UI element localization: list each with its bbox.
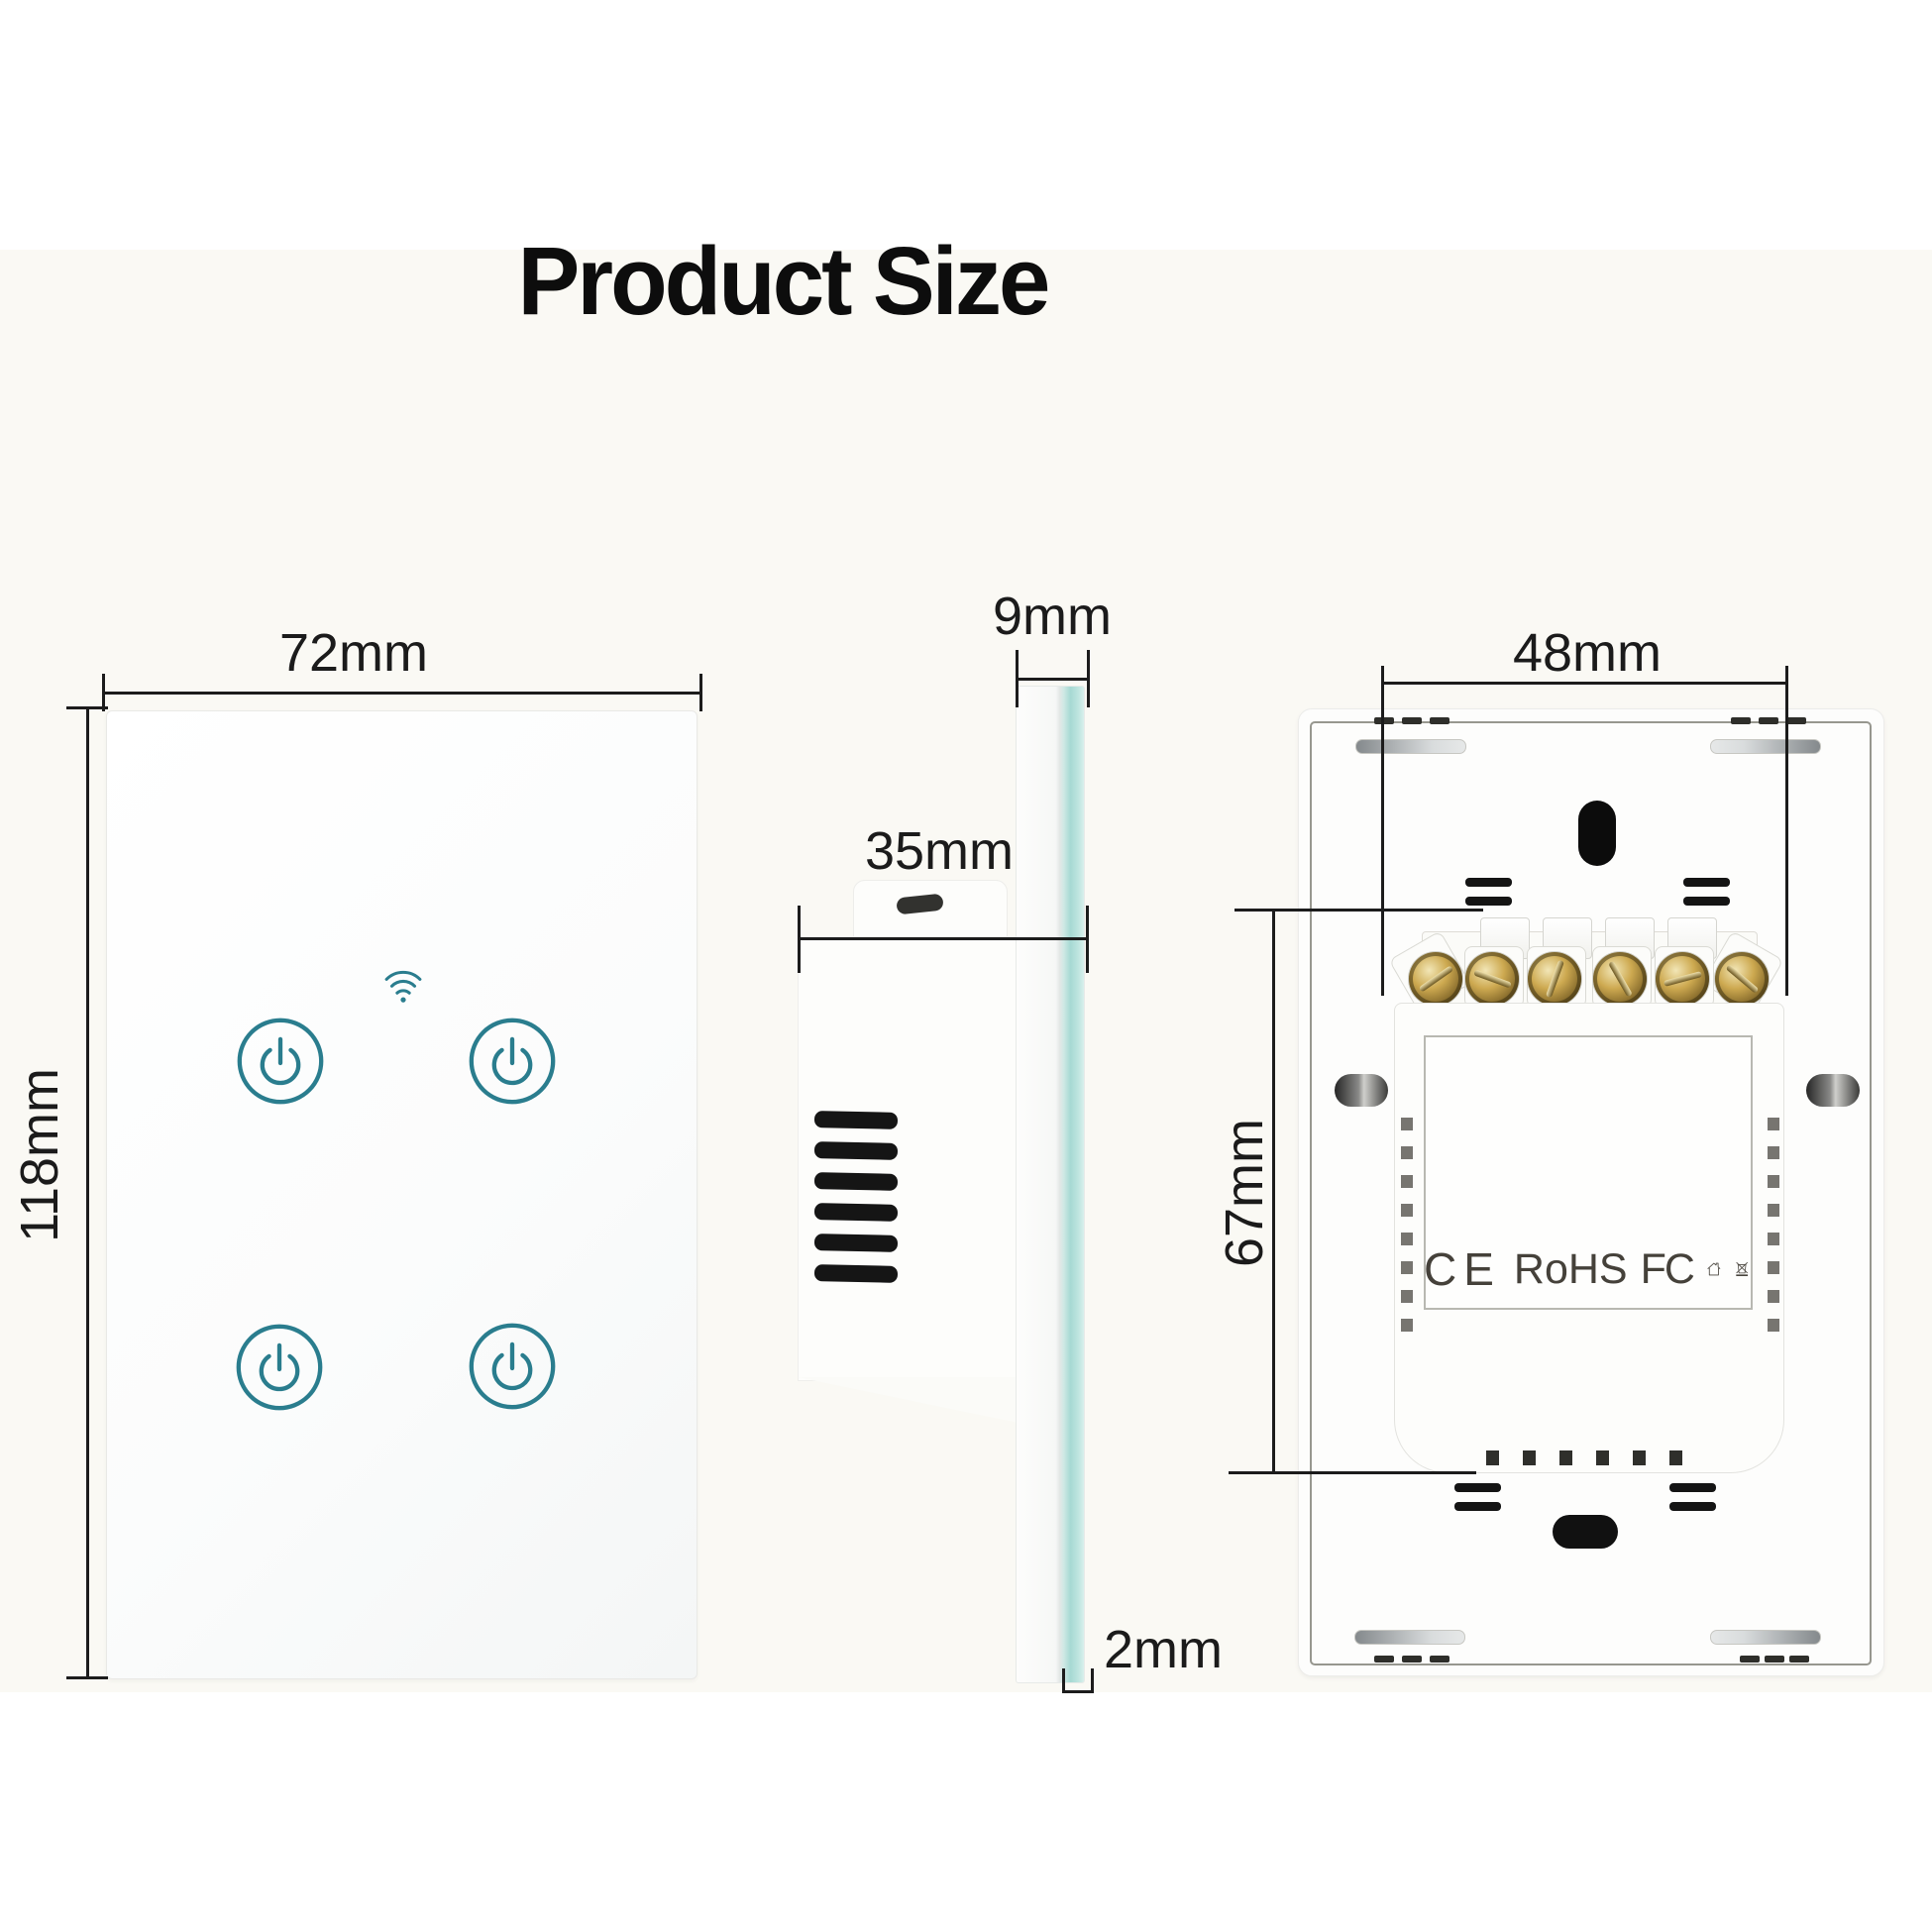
vent-slot <box>814 1111 898 1129</box>
alignment-mark <box>1454 1483 1501 1492</box>
dim-front-height-label: 118mm <box>9 1068 70 1242</box>
dimension-line <box>86 708 89 1679</box>
alignment-mark <box>1669 1502 1716 1511</box>
corner-dash <box>1430 717 1449 724</box>
module-notch <box>1523 1450 1536 1465</box>
dimension-tick <box>1016 650 1019 707</box>
corner-dash <box>1731 717 1751 724</box>
alignment-mark <box>1465 897 1512 906</box>
module-notch <box>1669 1450 1682 1465</box>
corner-dash <box>1786 717 1806 724</box>
mounting-slot <box>1710 1630 1821 1645</box>
keyhole-icon <box>1553 1515 1618 1549</box>
vent-slot <box>814 1203 898 1222</box>
page-title: Product Size <box>518 226 1048 337</box>
dimension-tick <box>1229 1471 1476 1474</box>
dim-front-width-label: 72mm <box>279 622 428 684</box>
corner-dash <box>1765 1656 1784 1663</box>
terminal-screw <box>1593 952 1647 1006</box>
dim-side-thickness-label: 2mm <box>1104 1619 1223 1680</box>
terminal-screw <box>1409 952 1462 1006</box>
dim-back-width-label: 48mm <box>1513 622 1662 684</box>
dimension-extension <box>1785 666 1788 996</box>
corner-dash <box>1759 717 1778 724</box>
corner-dash <box>1430 1656 1449 1663</box>
module-notch <box>1596 1450 1609 1465</box>
dimension-tick <box>1086 906 1089 973</box>
module-tick <box>1768 1175 1779 1188</box>
alignment-mark <box>1683 878 1730 887</box>
dimension-line <box>102 692 702 695</box>
dimension-line <box>1272 911 1275 1474</box>
product-size-diagram: Product Size 72mm 118mm <box>0 0 1932 1932</box>
module-notch <box>1486 1450 1499 1465</box>
waste-bin-icon <box>1735 1245 1749 1293</box>
dimension-line <box>1062 1690 1094 1693</box>
alignment-mark <box>1669 1483 1716 1492</box>
certification-row: CE RoHS FC <box>1424 1240 1749 1298</box>
corner-dash <box>1740 1656 1760 1663</box>
cert-label-fcc: FC <box>1641 1245 1693 1294</box>
alignment-mark <box>1683 897 1730 906</box>
wifi-icon <box>380 962 426 1006</box>
module-tick <box>1401 1175 1413 1188</box>
house-icon <box>1706 1247 1722 1291</box>
module-tick <box>1401 1146 1413 1159</box>
module-tick <box>1401 1319 1413 1332</box>
front-view-panel <box>106 710 698 1679</box>
cert-label-rohs: RoHS <box>1514 1245 1628 1294</box>
dimension-tick <box>66 706 108 709</box>
dim-side-glass-label: 9mm <box>993 586 1112 647</box>
module-tick <box>1768 1261 1779 1274</box>
module-tick <box>1401 1118 1413 1130</box>
corner-dash <box>1789 1656 1809 1663</box>
module-tick <box>1768 1319 1779 1332</box>
mounting-slot <box>1710 739 1821 754</box>
terminal-screw <box>1528 952 1581 1006</box>
side-view-body-tab <box>853 880 1008 943</box>
dimension-line <box>1382 682 1788 685</box>
corner-dash <box>1402 717 1422 724</box>
corner-dash <box>1374 1656 1394 1663</box>
power-button-icon <box>234 1322 325 1413</box>
side-view-glass-panel <box>1016 686 1085 1683</box>
vent-slot <box>814 1234 898 1252</box>
corner-dash <box>1374 717 1394 724</box>
module-notch <box>1633 1450 1646 1465</box>
terminal-screw <box>1656 952 1709 1006</box>
module-tick <box>1401 1204 1413 1217</box>
module-tick <box>1768 1204 1779 1217</box>
terminal-screw <box>1465 952 1519 1006</box>
power-button-icon <box>467 1016 558 1107</box>
mounting-slot <box>1354 1630 1465 1645</box>
alignment-mark <box>1454 1502 1501 1511</box>
module-notch <box>1559 1450 1572 1465</box>
dimension-tick <box>1234 909 1483 912</box>
cert-label-ce: CE <box>1424 1242 1501 1296</box>
dimension-line <box>798 937 1089 940</box>
mounting-slot <box>1355 739 1466 754</box>
module-tick <box>1401 1261 1413 1274</box>
dimension-tick <box>699 674 702 711</box>
power-button-icon <box>467 1321 558 1412</box>
alignment-mark <box>1465 878 1512 887</box>
keyhole-icon <box>1578 801 1616 866</box>
dimension-tick <box>798 906 801 973</box>
dimension-tick <box>66 1676 108 1679</box>
module-tick <box>1768 1233 1779 1245</box>
module-tick <box>1768 1118 1779 1130</box>
vent-slot <box>814 1172 898 1191</box>
dimension-tick <box>1087 650 1090 707</box>
side-mount-hole <box>1335 1074 1388 1107</box>
module-tick <box>1768 1146 1779 1159</box>
module-tick <box>1768 1290 1779 1303</box>
side-mount-hole <box>1806 1074 1860 1107</box>
dim-back-height-label: 67mm <box>1214 1119 1275 1267</box>
vent-slot <box>814 1264 898 1283</box>
terminal-screw <box>1715 952 1769 1006</box>
module-tick <box>1401 1290 1413 1303</box>
dimension-line <box>1016 678 1090 681</box>
power-button-icon <box>235 1016 326 1107</box>
corner-dash <box>1402 1656 1422 1663</box>
module-tick <box>1401 1233 1413 1245</box>
vent-slot <box>814 1141 898 1160</box>
dim-side-depth-label: 35mm <box>865 820 1014 882</box>
dimension-extension <box>1381 666 1384 996</box>
